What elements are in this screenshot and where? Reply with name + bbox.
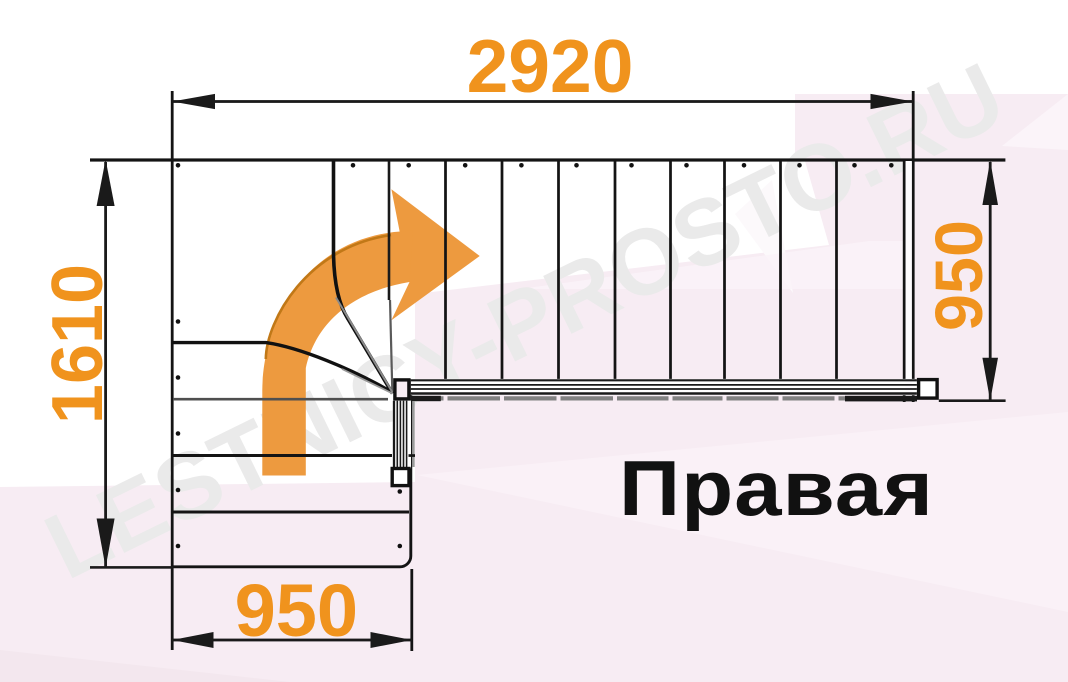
svg-text:2920: 2920 (467, 24, 634, 108)
svg-text:Правая: Правая (619, 445, 934, 532)
svg-text:1610: 1610 (38, 264, 118, 424)
svg-text:950: 950 (235, 569, 358, 652)
svg-text:950: 950 (923, 220, 997, 331)
